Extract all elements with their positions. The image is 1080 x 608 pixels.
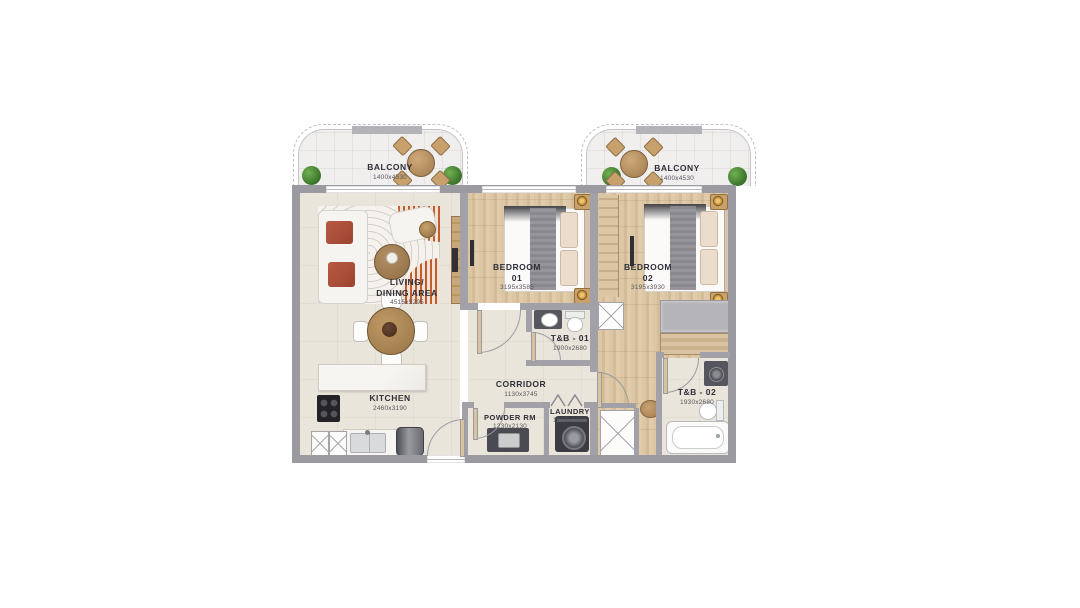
room-name: DINING AREA [357, 288, 457, 299]
sofa-cushion [328, 262, 355, 287]
stove [317, 395, 340, 422]
pillow [700, 249, 718, 285]
pillow [560, 250, 578, 286]
side-table [419, 221, 436, 238]
living-room-label: LIVING/ DINING AREA 4515x5295 [357, 277, 457, 307]
closet [600, 410, 636, 457]
floor-plan-canvas: BALCONY 1400x4530 BALCONY 1400x4530 [0, 0, 1080, 608]
base-cabinet [311, 431, 329, 456]
room-dimensions: 1215x1230 [544, 417, 596, 425]
bedroom1-label: BEDROOM 01 3195x3585 [477, 262, 557, 292]
room-name: BEDROOM [608, 262, 688, 273]
faucet-icon [365, 430, 370, 435]
tv [452, 248, 458, 272]
room-dimensions: 2460x3190 [345, 405, 435, 413]
room-dimensions: 1130x3745 [476, 391, 566, 399]
door-leaf [477, 310, 482, 354]
plant-icon [728, 167, 747, 186]
room-name: POWDER RM [472, 413, 548, 422]
wall [460, 193, 468, 310]
kitchen-island [318, 364, 426, 391]
room-dimensions: 1400x4530 [637, 175, 717, 183]
room-name: 01 [477, 273, 557, 284]
wall [520, 303, 590, 310]
door-leaf [460, 419, 465, 457]
room-name: BALCONY [350, 162, 430, 173]
drain-icon [716, 434, 720, 438]
door-leaf [597, 372, 602, 408]
room-name: 02 [608, 273, 688, 284]
lamp-icon [714, 197, 722, 205]
washbasin [498, 433, 520, 448]
toilet [567, 317, 583, 332]
balcony-right-label: BALCONY 1400x4530 [637, 163, 717, 183]
door-leaf [531, 332, 536, 362]
room-dimensions: 1400x4530 [350, 174, 430, 182]
room-dimensions: 3195x3930 [608, 284, 688, 292]
room-dimensions: 1900x2680 [538, 345, 602, 353]
closet [598, 302, 624, 330]
built-in-wardrobe [660, 300, 732, 333]
window [606, 186, 702, 193]
kitchen-label: KITCHEN 2460x3190 [345, 393, 435, 413]
washer-drum [562, 426, 586, 450]
pillow [700, 211, 718, 247]
sofa-cushion [326, 221, 353, 244]
washbasin [541, 313, 558, 327]
wall [700, 352, 730, 358]
bathtub [666, 421, 730, 454]
vanity [704, 361, 728, 386]
balcony-left-label: BALCONY 1400x4530 [350, 162, 430, 182]
wall [656, 352, 662, 455]
room-dimensions: 4515x5295 [357, 299, 457, 307]
powder-room-label: POWDER RM 1230x2130 [472, 413, 548, 432]
balcony-right-top-bar [636, 126, 702, 134]
bedroom2-label: BEDROOM 02 3195x3930 [608, 262, 688, 292]
laundry-label: LAUNDRY 1215x1230 [544, 407, 596, 426]
tb2-label: T&B - 02 1930x2680 [665, 387, 729, 407]
lamp-icon [578, 197, 586, 205]
room-name: LIVING/ [357, 277, 457, 288]
pillow [560, 212, 578, 248]
tv [470, 240, 474, 266]
nightstand [710, 194, 728, 210]
lamp-icon [578, 291, 586, 299]
room-name: BALCONY [637, 163, 717, 174]
washbasin [709, 367, 724, 382]
wall [634, 408, 639, 455]
room-dimensions: 1930x2680 [665, 399, 729, 407]
coffee-table-tray [386, 252, 398, 264]
corridor-label: CORRIDOR 1130x3745 [476, 379, 566, 399]
room-dimensions: 1230x2130 [472, 423, 548, 431]
room-name: CORRIDOR [476, 379, 566, 390]
room-name: BEDROOM [477, 262, 557, 273]
balcony-left-top-bar [352, 126, 422, 134]
refrigerator [396, 427, 424, 456]
wall [728, 185, 736, 463]
window [326, 186, 440, 193]
tb1-label: T&B - 01 1900x2680 [538, 333, 602, 353]
dining-centerpiece [382, 322, 397, 337]
room-name: T&B - 02 [665, 387, 729, 398]
wall [292, 185, 300, 463]
wall [526, 310, 532, 332]
kitchen-sink [350, 433, 386, 453]
wall [292, 455, 736, 463]
vanity [534, 310, 562, 329]
room-name: LAUNDRY [544, 407, 596, 416]
window [482, 186, 576, 193]
room-name: KITCHEN [345, 393, 435, 404]
wall [468, 303, 478, 310]
room-dimensions: 3195x3585 [477, 284, 557, 292]
base-cabinet [329, 431, 347, 456]
plant-icon [302, 166, 321, 185]
room-name: T&B - 01 [538, 333, 602, 344]
